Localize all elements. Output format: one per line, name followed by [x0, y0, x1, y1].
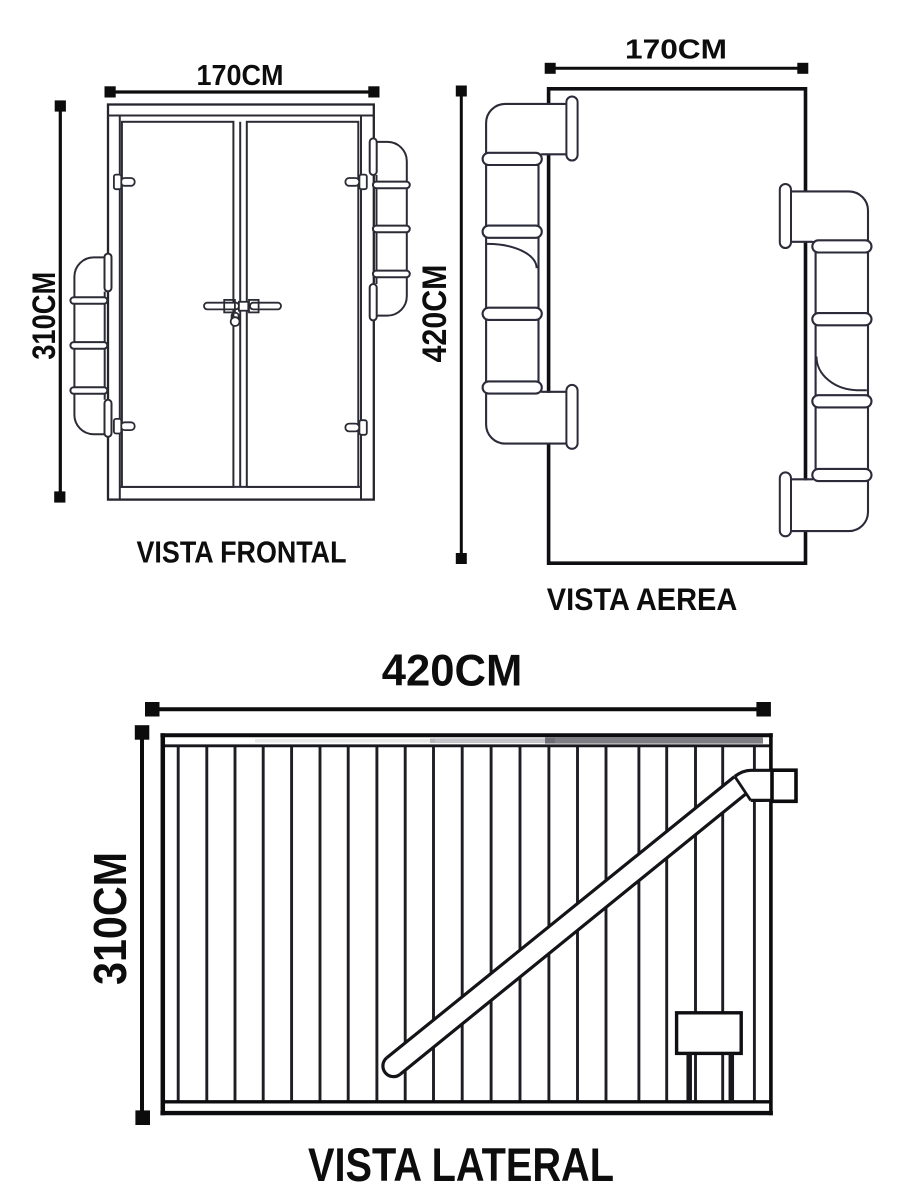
svg-text:170CM: 170CM — [625, 33, 727, 64]
svg-text:310CM: 310CM — [84, 852, 136, 985]
svg-text:VISTA LATERAL: VISTA LATERAL — [308, 1138, 614, 1191]
svg-text:310CM: 310CM — [26, 272, 62, 360]
svg-text:420CM: 420CM — [416, 265, 454, 363]
svg-text:VISTA AEREA: VISTA AEREA — [547, 581, 738, 617]
svg-text:170CM: 170CM — [197, 60, 284, 92]
svg-text:420CM: 420CM — [382, 647, 523, 696]
svg-text:VISTA FRONTAL: VISTA FRONTAL — [137, 536, 347, 570]
